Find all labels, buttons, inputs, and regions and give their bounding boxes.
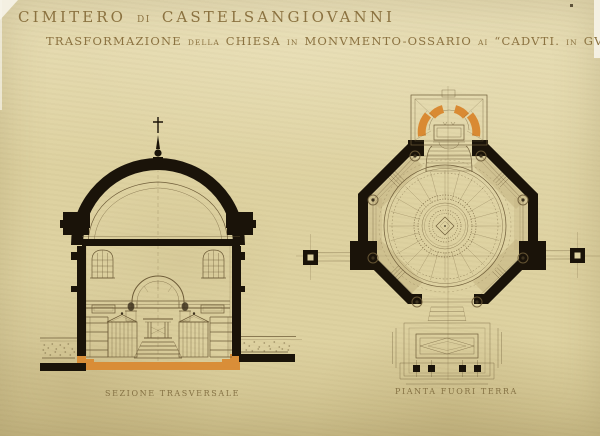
bust-right bbox=[179, 302, 191, 321]
footing-right bbox=[239, 354, 295, 362]
section-drawing bbox=[30, 105, 310, 385]
impost-right bbox=[226, 212, 256, 235]
paper-speck bbox=[570, 4, 573, 7]
window-right bbox=[201, 250, 226, 278]
blueprint-sheet: CIMITERO DI CASTELSANGIOVANNI TRASFORMAZ… bbox=[0, 0, 600, 436]
ground-fill-orange bbox=[77, 354, 240, 370]
plan-centerlines bbox=[296, 86, 600, 380]
cross-finial-icon bbox=[153, 117, 163, 160]
altar bbox=[143, 319, 173, 338]
entrance-steps bbox=[428, 307, 466, 321]
title-word: CIMITERO bbox=[18, 8, 126, 26]
section-caption: SEZIONE TRASVERSALE bbox=[105, 389, 240, 398]
subtitle-word-small: IN bbox=[566, 38, 578, 47]
footing-left bbox=[40, 363, 86, 371]
subtitle-word: CHIESA bbox=[226, 34, 281, 48]
portico bbox=[393, 323, 502, 384]
plan-drawing bbox=[293, 78, 600, 388]
bust-left bbox=[125, 302, 137, 321]
cornice bbox=[82, 237, 240, 247]
subtitle-word-small: DELLA bbox=[188, 38, 220, 47]
pier-left bbox=[303, 241, 377, 270]
gate-left bbox=[107, 312, 137, 357]
scan-edge-top-left bbox=[0, 0, 18, 20]
ground-texture-left bbox=[40, 338, 77, 358]
plan-caption: PIANTA FUORI TERRA bbox=[395, 387, 518, 396]
subtitle-word: “CADVTI. bbox=[494, 34, 560, 48]
subtitle-word-small: IN bbox=[287, 38, 299, 47]
memorial-plaque-left bbox=[92, 305, 115, 313]
sheet-title: CIMITERO DI CASTELSANGIOVANNI bbox=[18, 8, 395, 26]
scan-edge-right bbox=[594, 0, 600, 58]
impost-left bbox=[60, 212, 90, 235]
wall-left bbox=[71, 246, 86, 356]
window-left bbox=[90, 250, 115, 278]
subtitle-word: MONVMENTO-OSSARIO bbox=[304, 34, 472, 48]
ossuary-shelves-right bbox=[210, 317, 232, 357]
subtitle-word-small: AI bbox=[478, 38, 488, 47]
portico-columns bbox=[413, 360, 481, 377]
sheet-subtitle: TRASFORMAZIONE DELLA CHIESA IN MONVMENTO… bbox=[46, 34, 600, 48]
pier-right bbox=[519, 241, 585, 270]
ossuary-shelves-left bbox=[86, 317, 108, 357]
memorial-plaque-right bbox=[201, 305, 224, 313]
title-word: CASTELSANGIOVANNI bbox=[162, 8, 395, 26]
subtitle-word: TRASFORMAZIONE bbox=[46, 34, 182, 48]
subtitle-word: GVERRA bbox=[584, 34, 600, 48]
title-word-small: DI bbox=[137, 15, 151, 25]
scan-edge-left bbox=[0, 0, 2, 110]
gate-right bbox=[179, 312, 209, 357]
